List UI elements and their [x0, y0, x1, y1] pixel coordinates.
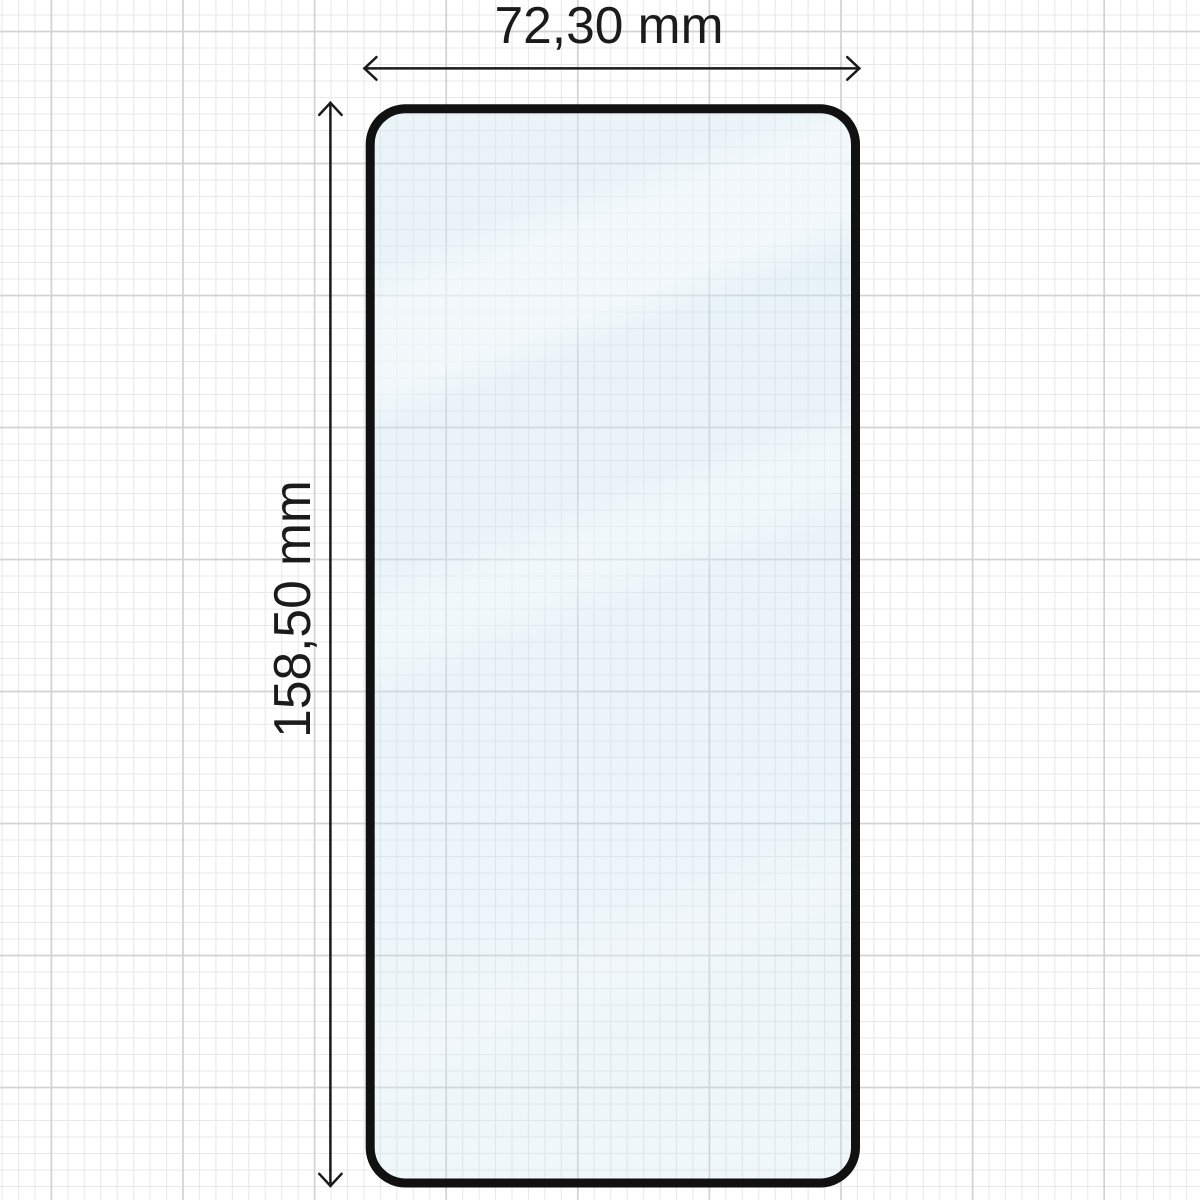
svg-text:158,50 mm: 158,50 mm	[263, 480, 321, 738]
svg-text:72,30 mm: 72,30 mm	[495, 0, 724, 54]
